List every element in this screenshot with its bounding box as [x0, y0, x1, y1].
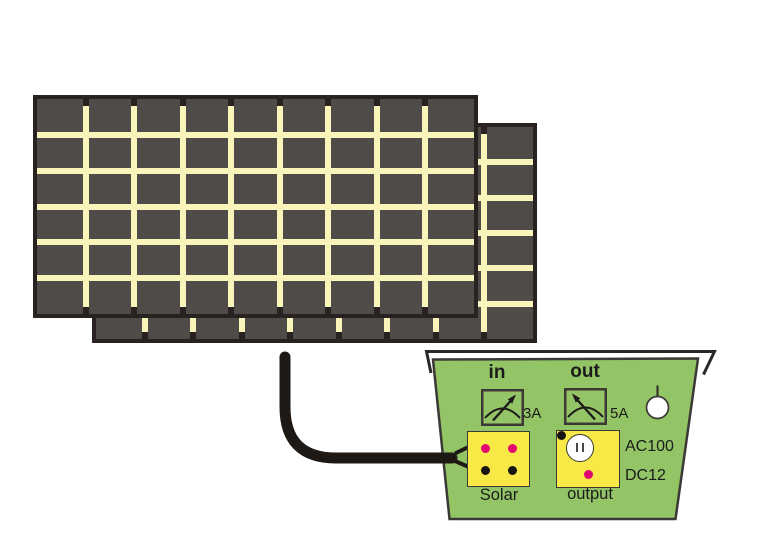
in-label: in	[489, 363, 506, 382]
knob-icon	[644, 384, 671, 421]
output-terminal-box	[556, 430, 620, 488]
solar-system-diagram: in out 3A 5A Solar AC100 DC12 output	[0, 0, 770, 552]
pink-terminal-dot	[481, 444, 490, 453]
cable-icon	[285, 357, 452, 458]
pink-terminal-dot	[508, 444, 517, 453]
out-meter-value: 5A	[610, 406, 628, 421]
out-label: out	[570, 362, 600, 381]
output-label: output	[567, 486, 613, 503]
black-terminal-dot	[557, 431, 566, 440]
in-meter-icon	[481, 389, 524, 426]
outlet-prong	[582, 443, 585, 452]
out-meter-icon	[564, 388, 607, 425]
ac-outlet-icon	[566, 434, 594, 462]
black-terminal-dot	[508, 466, 517, 475]
black-terminal-dot	[481, 466, 490, 475]
dc-output-label: DC12	[625, 468, 666, 484]
outlet-prong	[576, 443, 579, 452]
knob-face	[647, 397, 669, 419]
solar-input-terminal-box	[467, 431, 530, 487]
in-meter-value: 3A	[523, 406, 541, 421]
ac-output-label: AC100	[625, 439, 674, 455]
solar-input-label: Solar	[480, 487, 519, 504]
pink-terminal-dot	[584, 470, 593, 479]
